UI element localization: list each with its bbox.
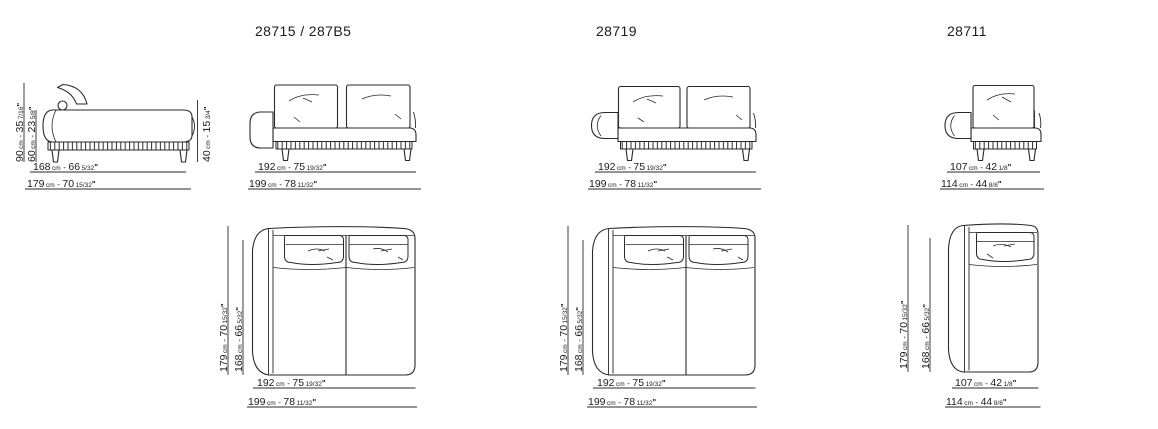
dim-inch-value: 75: [292, 377, 304, 389]
dim-inch-fraction: 15/32: [76, 182, 92, 189]
dim-separator: -: [985, 379, 988, 388]
plan-view-28711: 179cm-7015/32" 168cm-665/32" 107cm-421/8…: [885, 218, 1060, 423]
dim-inch-mark: ": [922, 304, 931, 308]
dim-cm-unit: cm: [267, 400, 276, 407]
dim-inch-fraction: 5/32: [82, 165, 95, 172]
dim-inch-value: 70: [218, 325, 230, 337]
dim-cm-value: 199: [588, 396, 606, 408]
base-rail: [621, 142, 753, 150]
dim-width-199cm: 199cm-7811/32": [249, 177, 317, 188]
base-rail: [48, 142, 189, 150]
dim-width-199cm: 199cm-7811/32": [248, 395, 316, 406]
dim-inch-fraction: 19/32: [306, 381, 322, 388]
dim-inch-fraction: 11/32: [637, 400, 653, 407]
right-leg: [743, 149, 750, 161]
dim-inch-value: 75: [632, 377, 644, 389]
dim-cm-unit: cm: [617, 165, 626, 172]
back-cushion: [347, 85, 411, 128]
base-rail: [974, 142, 1037, 150]
armrest: [250, 112, 273, 148]
dim-separator: -: [287, 379, 290, 388]
dim-cm-unit: cm: [237, 344, 244, 353]
dim-cm-value: 199: [249, 178, 267, 190]
back-cushion: [689, 236, 748, 265]
dim-cm-value: 168: [920, 351, 932, 369]
back-cushion: [275, 85, 338, 128]
dim-separator: -: [618, 398, 621, 407]
dim-separator: -: [278, 398, 281, 407]
dim-cm-value: 168: [33, 161, 51, 173]
dim-separator: -: [57, 180, 60, 189]
side-elevation-view: 90cm-357/16" 60cm-235/8" 40cm-153/4" 168…: [0, 60, 230, 205]
dim-inch-mark: ": [16, 103, 25, 107]
headrest-pivot: [58, 101, 67, 110]
dim-cm-value: 40: [201, 150, 213, 162]
dim-inch-value: 78: [623, 396, 635, 408]
dim-inch-mark: ": [220, 303, 229, 307]
dim-cm-unit: cm: [205, 140, 212, 149]
front-elevation-28715-287b5: 192cm-7519/32" 199cm-7811/32": [245, 60, 450, 205]
dim-cm-value: 179: [558, 354, 570, 372]
dim-cm-value: 114: [946, 396, 963, 408]
dim-width-107cm: 107cm-421/8": [950, 160, 1011, 171]
dim-width-114cm: 114cm-448/8": [941, 177, 1002, 188]
armrest-bolster: [592, 113, 619, 139]
front-elevation-28719: 192cm-7519/32" 199cm-7811/32": [585, 60, 790, 205]
dim-cm-unit: cm: [616, 381, 625, 388]
plan-view-28715-287b5: 179cm-7015/32" 168cm-665/32" 192cm-7519/…: [205, 218, 445, 423]
dim-cm-unit: cm: [46, 182, 55, 189]
dim-inch-mark: ": [1003, 398, 1007, 407]
dim-inch-mark: ": [323, 163, 327, 172]
back-cushion: [619, 87, 681, 129]
dim-height-90cm: 90cm-357/16": [13, 103, 24, 162]
dim-width-199cm: 199cm-7811/32": [588, 395, 656, 406]
dim-separator: -: [16, 135, 25, 138]
dim-cm-unit: cm: [277, 165, 286, 172]
model-title-28719: 28719: [596, 23, 637, 39]
dim-cm-unit: cm: [18, 140, 25, 149]
dim-separator: -: [627, 379, 630, 388]
dim-inch-value: 66: [920, 322, 932, 334]
dim-inch-mark: ": [652, 398, 656, 407]
dim-cm-value: 199: [248, 396, 266, 408]
dim-inch-fraction: 5/32: [237, 311, 244, 324]
dim-width-192cm: 192cm-7519/32": [258, 160, 327, 171]
dim-inch-fraction: 3/4: [205, 110, 212, 119]
dim-inch-value: 75: [293, 161, 305, 173]
dim-width-199cm: 199cm-7811/32": [589, 177, 657, 188]
dim-inch-fraction: 19/32: [307, 165, 323, 172]
dim-height-60cm: 60cm-235/8": [25, 106, 36, 162]
plan-drawing-28711: [885, 218, 1060, 423]
dim-inch-mark: ": [322, 379, 326, 388]
dim-inch-mark: ": [663, 163, 667, 172]
dim-inch-fraction: 5/32: [577, 311, 584, 324]
dim-cm-unit: cm: [608, 182, 617, 189]
dim-inch-fraction: 19/32: [647, 165, 663, 172]
dim-inch-fraction: 1/8: [1004, 381, 1013, 388]
dim-inch-fraction: 11/32: [638, 182, 654, 189]
dim-separator: -: [619, 180, 622, 189]
dim-inch-mark: ": [560, 303, 569, 307]
dim-inch-fraction: 15/32: [902, 304, 909, 320]
back-cushions: [973, 86, 1034, 129]
dim-cm-unit: cm: [607, 400, 616, 407]
dim-inch-mark: ": [900, 300, 909, 304]
left-leg: [282, 149, 289, 161]
dim-separator: -: [980, 163, 983, 172]
dim-inch-fraction: 5/8: [30, 110, 37, 119]
left-leg: [626, 149, 633, 161]
dim-depth-179cm: 179cm-7015/32": [557, 303, 568, 372]
front-elevation-28711: 107cm-421/8" 114cm-448/8": [925, 60, 1070, 205]
dim-separator: -: [560, 339, 569, 342]
legs: [282, 149, 411, 161]
dim-inch-mark: ": [575, 307, 584, 311]
dim-width-192cm: 192cm-7519/32": [257, 376, 326, 387]
dim-cm-unit: cm: [268, 182, 277, 189]
dim-inch-fraction: 5/32: [924, 308, 931, 321]
dim-depth-179cm: 179cm-7015/32": [217, 303, 228, 372]
dim-inch-value: 70: [898, 322, 910, 334]
dim-cm-value: 192: [257, 377, 275, 389]
back-cushions: [275, 85, 411, 128]
plan-view-28719: 179cm-7015/32" 168cm-665/32" 192cm-7519/…: [545, 218, 785, 423]
left-leg: [977, 149, 984, 161]
dim-inch-fraction: 8/8: [989, 182, 998, 189]
dim-inch-mark: ": [662, 379, 666, 388]
dim-cm-unit: cm: [969, 165, 978, 172]
dim-inch-mark: ": [1013, 379, 1017, 388]
dim-inch-mark: ": [94, 163, 98, 172]
back-cushion: [687, 87, 750, 129]
dim-cm-unit: cm: [222, 344, 229, 353]
dim-inch-value: 66: [233, 325, 245, 337]
dim-separator: -: [203, 135, 212, 138]
dim-cm-unit: cm: [52, 165, 61, 172]
dim-cm-value: 192: [597, 377, 615, 389]
dim-inch-value: 42: [985, 161, 997, 173]
dim-inch-value: 42: [990, 377, 1002, 389]
dim-separator: -: [279, 180, 282, 189]
dim-width-192cm: 192cm-7519/32": [598, 160, 667, 171]
dim-cm-value: 107: [955, 377, 973, 389]
dim-cm-value: 179: [898, 351, 910, 369]
dim-inch-mark: ": [653, 180, 657, 189]
dim-inch-mark: ": [998, 180, 1002, 189]
dim-depth-168cm: 168cm-665/32": [232, 307, 243, 372]
seat-base: [971, 128, 1041, 142]
dim-height-40cm: 40cm-153/4": [200, 106, 211, 162]
dim-cm-value: 179: [27, 178, 45, 190]
dim-inch-fraction: 15/32: [562, 307, 569, 323]
dim-inch-mark: ": [235, 307, 244, 311]
back-cushion: [285, 236, 344, 265]
model-title-28711: 28711: [947, 23, 987, 39]
dim-cm-value: 192: [598, 161, 616, 173]
back-cushion: [625, 236, 684, 265]
dim-depth-179cm: 179cm-7015/32": [897, 300, 908, 369]
dim-inch-fraction: 1/8: [999, 165, 1008, 172]
dim-cm-unit: cm: [974, 381, 983, 388]
dim-depth-168cm: 168cm-665/32": [919, 304, 930, 369]
dim-separator: -: [922, 336, 931, 339]
dim-separator: -: [975, 398, 978, 407]
dim-separator: -: [900, 336, 909, 339]
dim-cm-value: 114: [941, 178, 958, 190]
technical-drawing-sheet: 28715 / 287B5 28719 28711: [0, 0, 1158, 429]
right-leg: [180, 150, 187, 162]
dim-cm-unit: cm: [902, 341, 909, 350]
back-panel-edge: [1035, 111, 1041, 129]
dim-inch-value: 23: [26, 121, 38, 133]
dim-separator: -: [628, 163, 631, 172]
dim-cm-value: 168: [573, 354, 585, 372]
dim-separator: -: [28, 135, 37, 138]
dim-inch-mark: ": [203, 106, 212, 110]
dim-inch-mark: ": [312, 398, 316, 407]
dim-width-107cm: 107cm-421/8": [955, 376, 1016, 387]
dim-width-179cm: 179cm-7015/32": [27, 177, 96, 188]
dim-separator: -: [235, 339, 244, 342]
dim-cm-unit: cm: [562, 344, 569, 353]
daybed-body: [43, 110, 195, 142]
dim-cm-value: 192: [258, 161, 276, 173]
back-cushion: [977, 233, 1035, 262]
dim-inch-value: 75: [633, 161, 645, 173]
dim-inch-value: 78: [283, 396, 295, 408]
dim-width-192cm: 192cm-7519/32": [597, 376, 666, 387]
dim-inch-value: 44: [981, 396, 993, 408]
dim-cm-unit: cm: [276, 381, 285, 388]
armrest-bolster: [945, 113, 971, 139]
dim-inch-mark: ": [28, 106, 37, 110]
dim-inch-value: 70: [558, 325, 570, 337]
dim-cm-unit: cm: [959, 182, 968, 189]
dim-inch-value: 70: [62, 178, 74, 190]
dim-cm-value: 107: [950, 161, 968, 173]
dim-inch-fraction: 19/32: [646, 381, 662, 388]
dim-inch-value: 66: [573, 325, 585, 337]
dim-inch-fraction: 8/8: [994, 400, 1003, 407]
back-cushion: [973, 86, 1034, 129]
legs: [626, 149, 750, 161]
dim-cm-value: 179: [218, 354, 230, 372]
dim-separator: -: [220, 339, 229, 342]
dim-cm-unit: cm: [30, 140, 37, 149]
dim-inch-mark: ": [313, 180, 317, 189]
dim-separator: -: [63, 163, 66, 172]
dim-inch-fraction: 15/32: [222, 307, 229, 323]
dim-separator: -: [575, 339, 584, 342]
dim-cm-unit: cm: [964, 400, 973, 407]
dim-inch-value: 66: [68, 161, 80, 173]
dim-inch-mark: ": [1008, 163, 1012, 172]
dim-inch-fraction: 11/32: [298, 182, 314, 189]
dim-separator: -: [970, 180, 973, 189]
back-cushions: [619, 87, 751, 129]
base-rail: [276, 142, 412, 150]
dim-cm-value: 168: [233, 354, 245, 372]
back-cushions-plan: [977, 233, 1035, 262]
dim-inch-value: 78: [624, 178, 636, 190]
dim-cm-unit: cm: [577, 344, 584, 353]
back-cushion: [349, 236, 408, 265]
right-leg: [1029, 149, 1036, 161]
dim-cm-unit: cm: [924, 341, 931, 350]
dim-inch-value: 15: [201, 121, 213, 133]
dim-depth-168cm: 168cm-665/32": [572, 307, 583, 372]
dim-inch-mark: ": [92, 180, 96, 189]
right-leg: [404, 149, 411, 161]
dim-inch-value: 78: [284, 178, 296, 190]
dim-separator: -: [288, 163, 291, 172]
dim-width-168cm: 168cm-665/32": [33, 160, 98, 171]
dim-cm-value: 199: [589, 178, 607, 190]
dim-inch-value: 44: [976, 178, 988, 190]
legs: [977, 149, 1036, 161]
dim-inch-fraction: 7/16: [18, 107, 25, 120]
model-title-28715-287b5: 28715 / 287B5: [255, 23, 351, 39]
dim-width-114cm: 114cm-448/8": [946, 395, 1007, 406]
dim-inch-fraction: 11/32: [297, 400, 313, 407]
adjustable-headrest: [58, 85, 88, 111]
